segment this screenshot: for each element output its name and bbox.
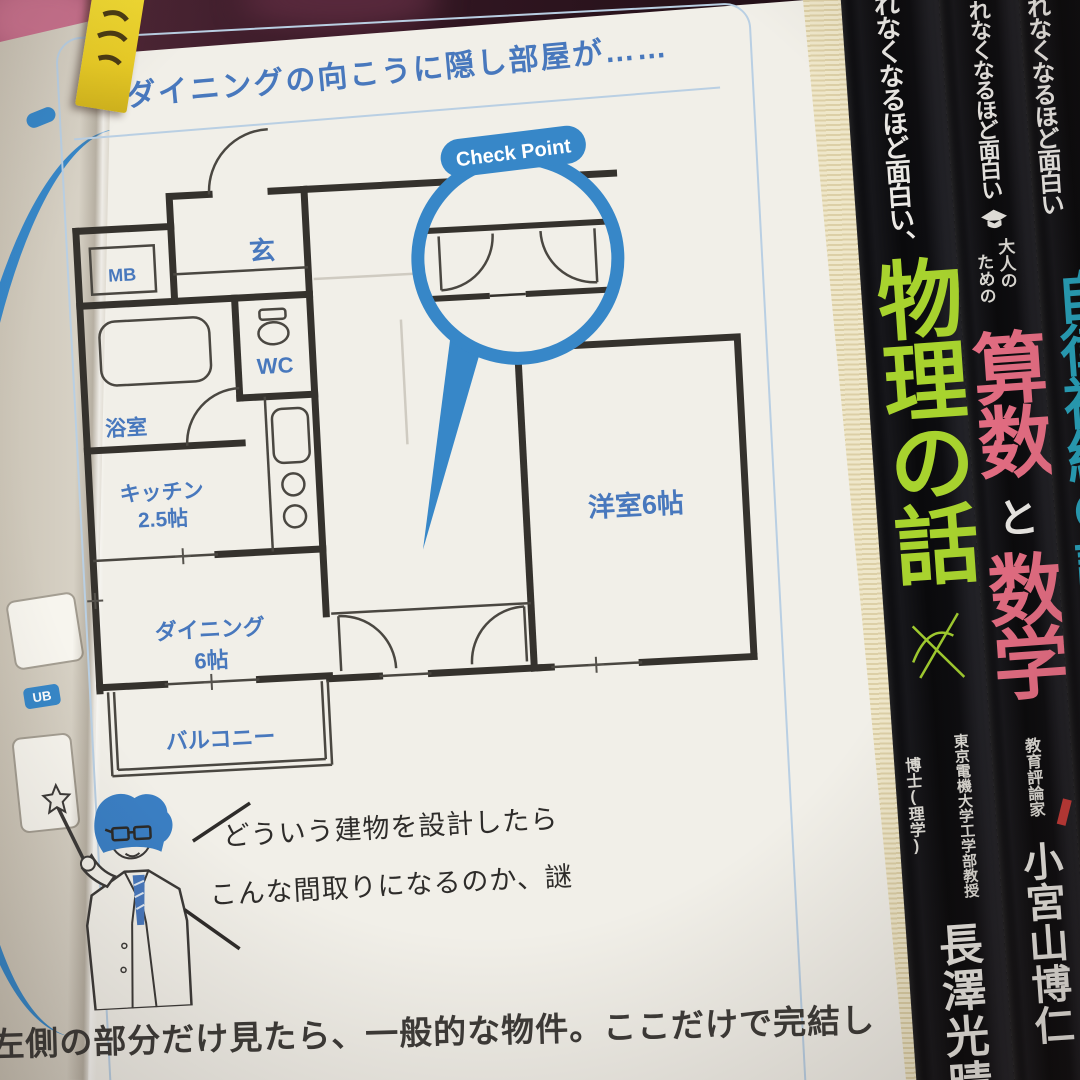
bath-label: 浴室 xyxy=(105,415,148,441)
spine2-title-main: 算数 xyxy=(964,326,1052,479)
spine1-title: 物理の話 xyxy=(866,253,975,586)
kitchen-size-label: 2.5帖 xyxy=(137,507,188,533)
spine2-series: れなくなるほど面白い xyxy=(966,0,1002,200)
entry-door-arc xyxy=(206,129,271,194)
stove-burner-icon xyxy=(282,473,305,496)
kitchen-sink-icon xyxy=(271,408,310,464)
dining-size-label: 6帖 xyxy=(194,647,230,674)
kitchen-label: キッチン xyxy=(119,479,204,506)
dining-label: ダイニング xyxy=(154,614,265,645)
entrance-label: 玄 xyxy=(248,235,276,266)
western-room-label: 洋室6帖 xyxy=(587,487,685,523)
corridor-door-left xyxy=(338,613,396,671)
book-photo-scene: ト UB ダイニングの向こうに隠し部屋が…… xyxy=(0,0,1080,1080)
bath-door-arc xyxy=(184,388,242,446)
page-content: ダイニングの向こうに隠し部屋が…… xyxy=(40,0,878,1080)
star-icon xyxy=(43,785,70,813)
spine2-audience-2: ための xyxy=(975,253,996,305)
spine2-role: 教育評論家 xyxy=(1021,737,1043,818)
toilet-icon xyxy=(258,321,289,345)
spine1-series: れなくなるほど面白い、 xyxy=(871,0,915,255)
bathtub-icon xyxy=(99,317,212,387)
checkpoint-magnifier: Check Point xyxy=(401,122,633,550)
balcony-label: バルコニー xyxy=(165,724,276,755)
checkpoint-pointer-tail xyxy=(412,338,491,549)
hand xyxy=(81,856,96,871)
spine2-title-sub: 数学 xyxy=(979,547,1067,700)
corridor-door-right xyxy=(469,606,527,664)
blue-hair xyxy=(93,791,174,855)
hidden-room-faint-lines xyxy=(314,274,428,449)
spine2-author: 小宮山博仁 xyxy=(1018,840,1072,1047)
spine1-green-art xyxy=(901,601,973,697)
spine2-audience-1: 大人の xyxy=(996,237,1017,289)
wc-label: WC xyxy=(256,352,294,379)
spine1-credential: 博士(理学) xyxy=(902,756,925,855)
red-accent-mark xyxy=(1057,798,1072,825)
stove-burner-icon xyxy=(284,505,307,528)
graduation-cap-icon xyxy=(980,208,1009,232)
spine2-title-conjunction: と xyxy=(993,494,1038,539)
spine1-author: 長澤光晴 xyxy=(932,921,989,1080)
mb-label: MB xyxy=(108,264,137,285)
spine1-affiliation: 東京電機大学工学部教授 xyxy=(952,733,978,899)
floorplan-diagram: MB 玄 WC 浴室 キッチン 2.5帖 ダイニング 6帖 洋室6帖 バルコニー xyxy=(51,96,786,822)
